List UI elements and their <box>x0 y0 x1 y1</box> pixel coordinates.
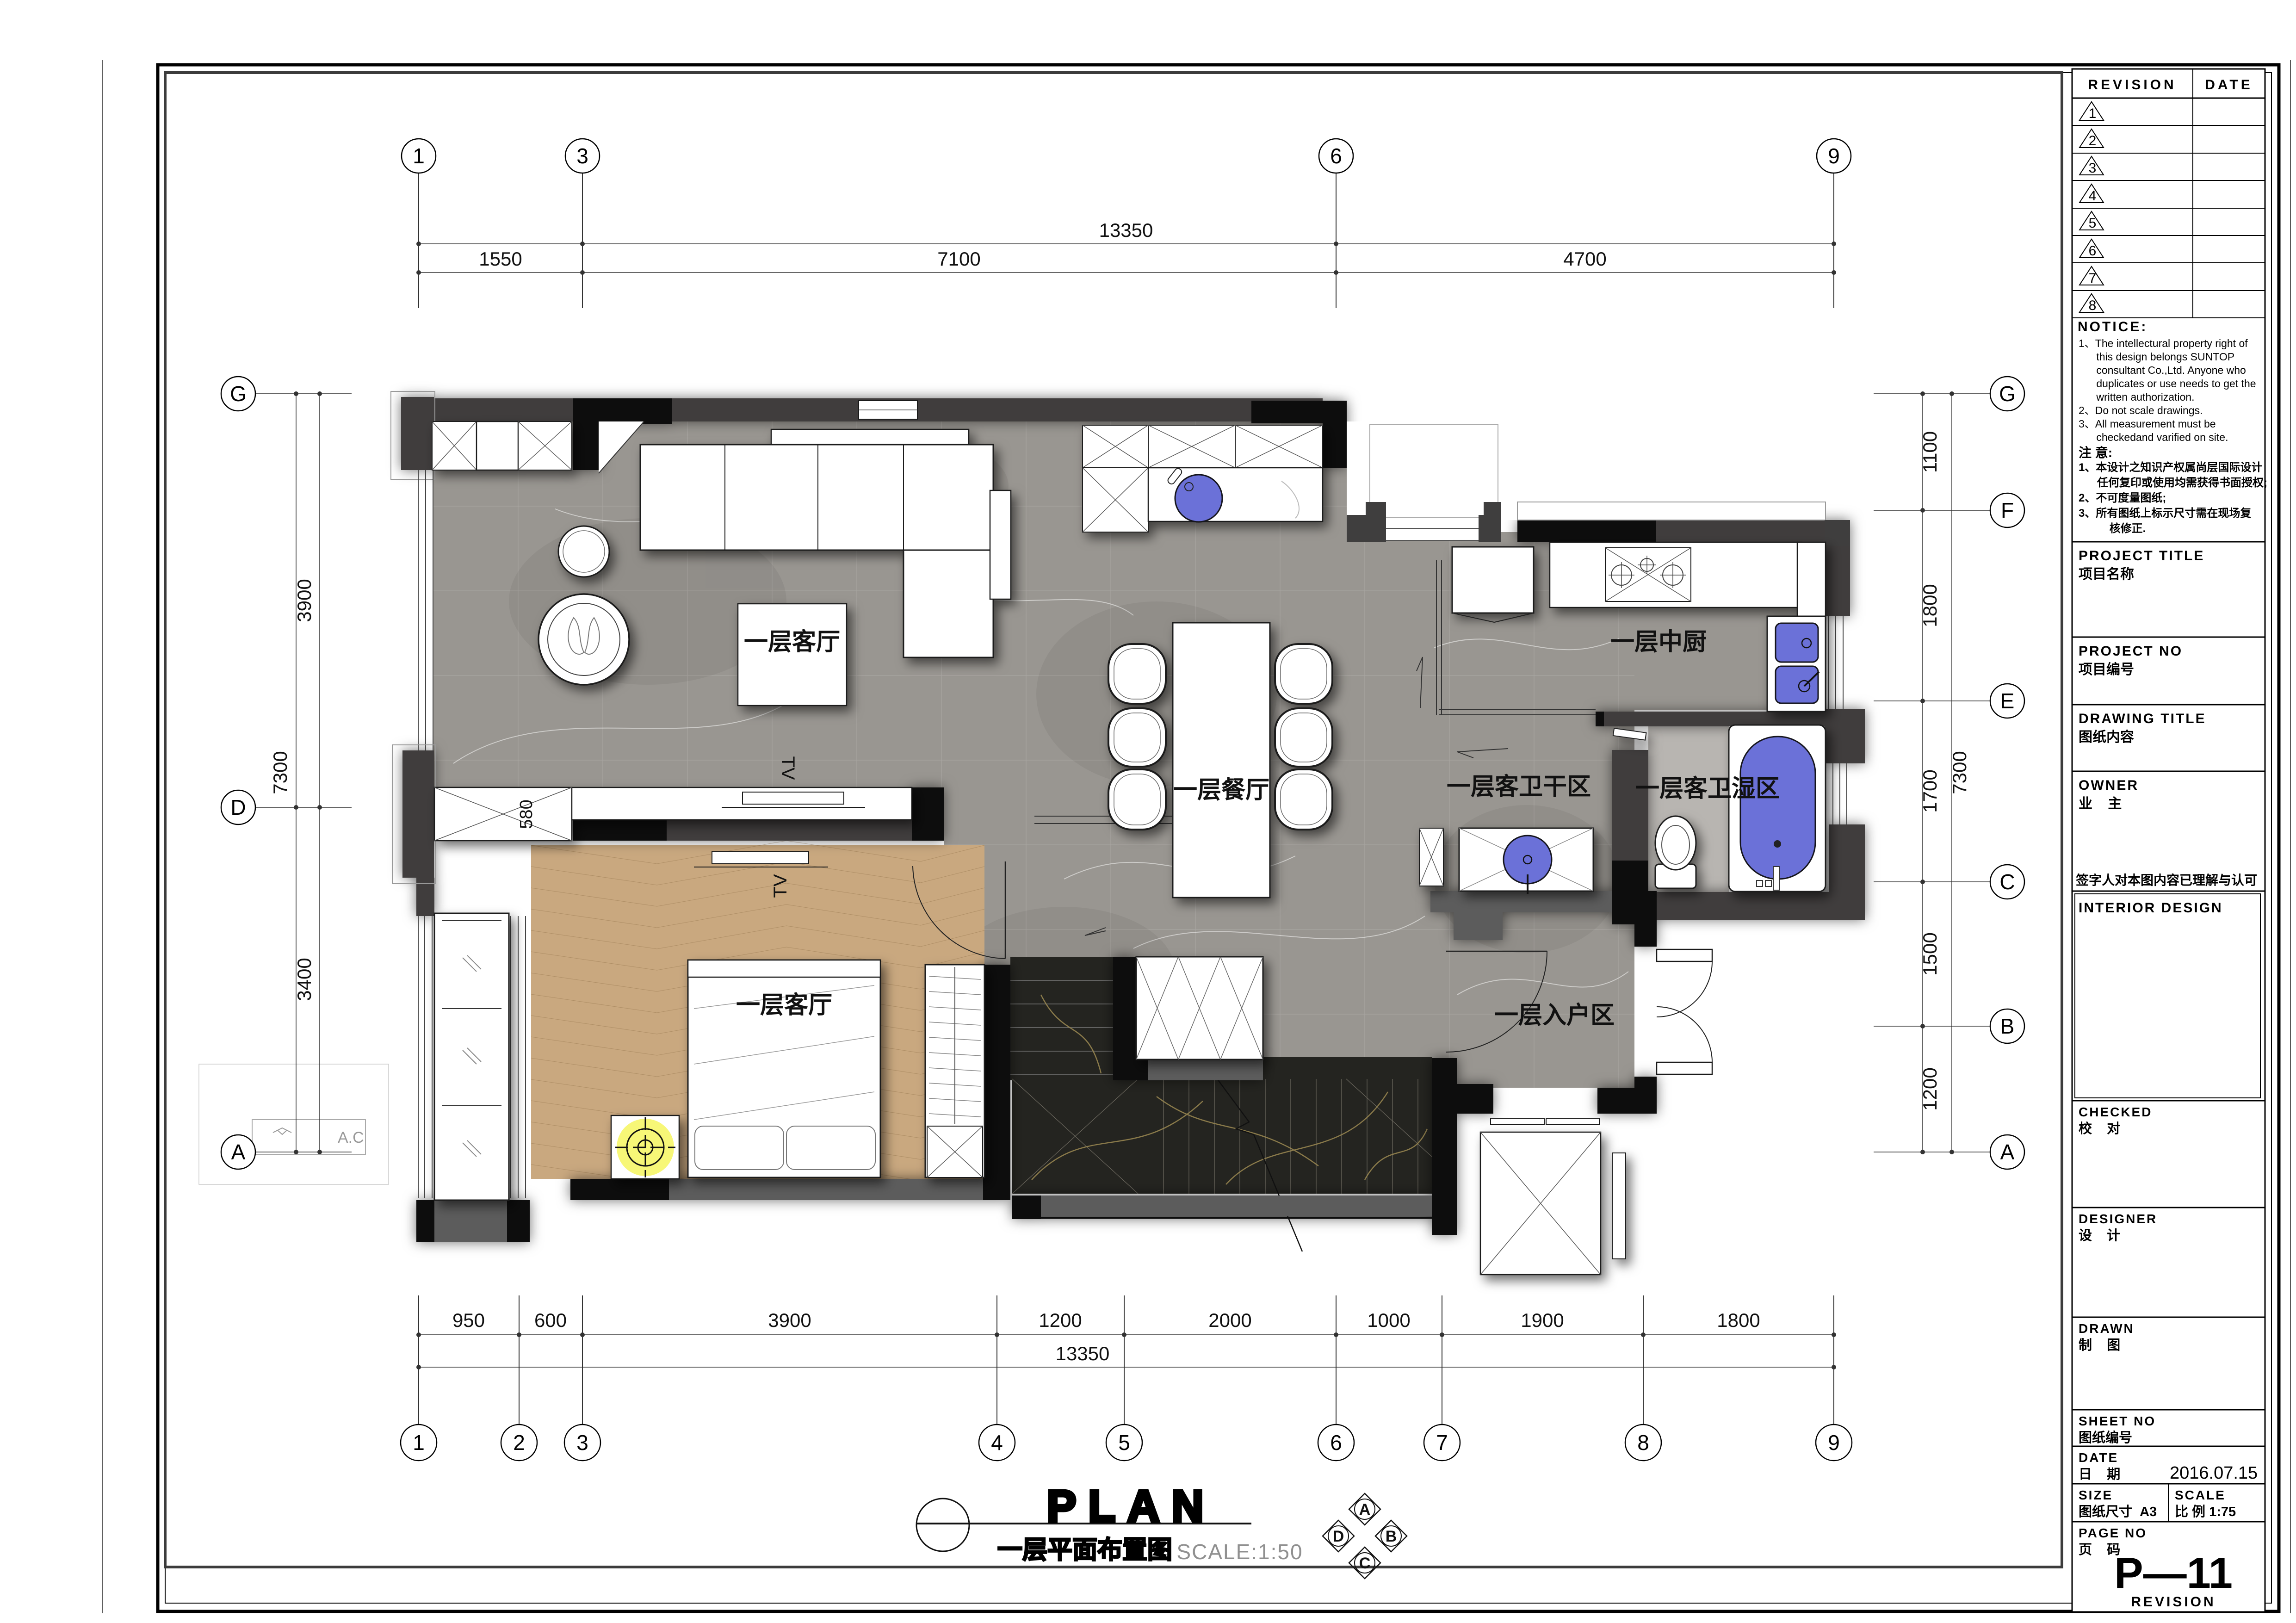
svg-text:REVISION: REVISION <box>2131 1594 2216 1610</box>
svg-text:B: B <box>2000 1014 2015 1038</box>
svg-text:7300: 7300 <box>1949 751 1970 794</box>
svg-text:1200: 1200 <box>1039 1309 1082 1331</box>
svg-text:G: G <box>1999 382 2016 406</box>
svg-text:1200: 1200 <box>1919 1067 1941 1110</box>
svg-text:1、The intellectural property r: 1、The intellectural property right of <box>2079 337 2248 349</box>
svg-text:6: 6 <box>2089 243 2097 259</box>
svg-text:制 图: 制 图 <box>2079 1338 2120 1353</box>
svg-text:13350: 13350 <box>1099 219 1153 241</box>
svg-text:DATE: DATE <box>2205 77 2253 93</box>
svg-text:5: 5 <box>2089 216 2097 231</box>
svg-text:一层餐厅: 一层餐厅 <box>1173 777 1269 804</box>
svg-text:2、Do not scale drawings.: 2、Do not scale drawings. <box>2079 404 2203 416</box>
svg-text:4: 4 <box>2089 188 2097 204</box>
svg-text:SCALE:1:50: SCALE:1:50 <box>1176 1540 1303 1564</box>
svg-text:一层平面布置图: 一层平面布置图 <box>997 1536 1172 1564</box>
svg-text:OWNER: OWNER <box>2079 778 2139 793</box>
svg-text:INTERIOR DESIGN: INTERIOR DESIGN <box>2079 900 2223 916</box>
svg-text:consultant Co.,Ltd. Anyone who: consultant Co.,Ltd. Anyone who <box>2079 364 2246 376</box>
svg-text:7300: 7300 <box>269 751 291 794</box>
svg-text:2: 2 <box>2089 133 2097 149</box>
svg-text:设 计: 设 计 <box>2079 1228 2120 1243</box>
svg-text:1100: 1100 <box>1919 431 1941 473</box>
svg-text:P—11: P—11 <box>2114 1549 2233 1597</box>
svg-text:duplicates or use needs to get: duplicates or use needs to get the <box>2079 378 2256 390</box>
svg-text:1000: 1000 <box>1367 1309 1410 1331</box>
svg-text:9: 9 <box>1828 1431 1840 1455</box>
svg-text:this design belongs SUNTOP: this design belongs SUNTOP <box>2079 351 2234 363</box>
svg-text:SHEET NO: SHEET NO <box>2079 1414 2156 1428</box>
svg-text:1900: 1900 <box>1521 1309 1564 1331</box>
svg-text:一层客卫干区: 一层客卫干区 <box>1447 774 1591 800</box>
svg-text:3900: 3900 <box>768 1309 811 1331</box>
svg-text:1700: 1700 <box>1919 769 1941 812</box>
svg-text:A.C: A.C <box>338 1129 364 1146</box>
svg-text:图纸编号: 图纸编号 <box>2079 1430 2132 1445</box>
svg-text:图纸内容: 图纸内容 <box>2079 730 2134 745</box>
svg-text:2、不可度量图纸;: 2、不可度量图纸; <box>2079 491 2166 504</box>
svg-text:一层客厅: 一层客厅 <box>736 992 832 1019</box>
svg-text:7100: 7100 <box>937 248 980 270</box>
svg-text:日 期: 日 期 <box>2079 1467 2120 1482</box>
svg-text:13350: 13350 <box>1056 1343 1110 1364</box>
svg-text:2000: 2000 <box>1208 1309 1251 1331</box>
svg-text:D: D <box>1333 1528 1344 1545</box>
svg-text:2016.07.15: 2016.07.15 <box>2170 1463 2258 1483</box>
svg-text:核修正.: 核修正. <box>2079 522 2146 535</box>
svg-text:A: A <box>2000 1140 2015 1164</box>
svg-text:一层中厨: 一层中厨 <box>1610 629 1707 656</box>
svg-text:一层客厅: 一层客厅 <box>744 629 840 656</box>
svg-text:PAGE NO: PAGE NO <box>2079 1526 2147 1540</box>
svg-text:4: 4 <box>991 1431 1003 1455</box>
svg-text:SIZE: SIZE <box>2079 1488 2113 1502</box>
svg-text:3900: 3900 <box>293 579 315 622</box>
svg-text:比 例 1:75: 比 例 1:75 <box>2175 1504 2236 1519</box>
svg-text:6: 6 <box>1330 144 1342 168</box>
svg-text:TV: TV <box>770 874 791 898</box>
svg-text:业 主: 业 主 <box>2079 796 2122 811</box>
svg-text:PLAN: PLAN <box>1046 1481 1215 1531</box>
svg-text:一层客卫湿区: 一层客卫湿区 <box>1635 775 1780 802</box>
svg-text:DRAWING TITLE: DRAWING TITLE <box>2079 711 2206 726</box>
svg-text:PROJECT TITLE: PROJECT TITLE <box>2079 548 2204 564</box>
svg-text:DESIGNER: DESIGNER <box>2079 1212 2157 1226</box>
svg-text:580: 580 <box>517 799 536 829</box>
svg-text:4700: 4700 <box>1563 248 1606 270</box>
svg-text:1800: 1800 <box>1919 584 1941 627</box>
svg-text:REVISION: REVISION <box>2088 77 2176 93</box>
svg-text:9: 9 <box>1828 144 1840 168</box>
svg-text:1550: 1550 <box>479 248 522 270</box>
svg-text:checkedand varified on site.: checkedand varified on site. <box>2079 431 2228 443</box>
svg-text:CHECKED: CHECKED <box>2079 1105 2152 1119</box>
svg-text:DATE: DATE <box>2079 1450 2118 1465</box>
svg-text:注 意:: 注 意: <box>2079 445 2112 460</box>
svg-text:D: D <box>230 795 246 819</box>
svg-text:项目名称: 项目名称 <box>2079 567 2134 582</box>
svg-text:NOTICE:: NOTICE: <box>2078 319 2147 335</box>
svg-text:5: 5 <box>1118 1431 1130 1455</box>
svg-text:PROJECT NO: PROJECT NO <box>2079 644 2183 659</box>
svg-text:8: 8 <box>1637 1431 1649 1455</box>
svg-text:F: F <box>2001 498 2014 522</box>
svg-text:项目编号: 项目编号 <box>2079 662 2134 677</box>
svg-text:written authorization.: written authorization. <box>2079 391 2195 403</box>
svg-text:3: 3 <box>2089 161 2097 176</box>
svg-text:7: 7 <box>1436 1431 1448 1455</box>
svg-text:3: 3 <box>576 1431 588 1455</box>
svg-text:3: 3 <box>576 144 588 168</box>
svg-text:SCALE: SCALE <box>2175 1488 2226 1502</box>
svg-text:1800: 1800 <box>1717 1309 1760 1331</box>
svg-text:1500: 1500 <box>1919 932 1941 975</box>
svg-text:1: 1 <box>413 144 425 168</box>
svg-text:C: C <box>1999 870 2015 894</box>
svg-text:1: 1 <box>2089 106 2097 121</box>
svg-text:G: G <box>230 382 247 406</box>
svg-text:7: 7 <box>2089 271 2097 286</box>
svg-text:3400: 3400 <box>293 958 315 1001</box>
svg-text:950: 950 <box>452 1309 485 1331</box>
svg-text:1: 1 <box>413 1431 425 1455</box>
svg-text:3、所有图纸上标示尺寸需在现场复: 3、所有图纸上标示尺寸需在现场复 <box>2079 507 2252 520</box>
svg-text:一层入户区: 一层入户区 <box>1494 1002 1615 1029</box>
svg-text:8: 8 <box>2089 298 2097 313</box>
svg-text:B: B <box>1386 1528 1397 1545</box>
svg-text:6: 6 <box>1330 1431 1342 1455</box>
svg-text:校 对: 校 对 <box>2079 1121 2120 1136</box>
svg-text:图纸尺寸 A3: 图纸尺寸 A3 <box>2079 1504 2157 1519</box>
svg-text:600: 600 <box>534 1309 567 1331</box>
svg-text:TV: TV <box>778 756 798 780</box>
svg-text:A: A <box>231 1140 246 1164</box>
svg-text:A: A <box>1359 1501 1371 1518</box>
svg-text:3、All measurement must be: 3、All measurement must be <box>2079 418 2216 430</box>
svg-text:1、本设计之知识产权属尚层国际设计: 1、本设计之知识产权属尚层国际设计 <box>2079 461 2262 474</box>
svg-text:C: C <box>1359 1555 1371 1572</box>
svg-text:E: E <box>2000 689 2015 713</box>
svg-text:任何复印或使用均需获得书面授权;: 任何复印或使用均需获得书面授权; <box>2079 476 2267 489</box>
svg-text:2: 2 <box>513 1431 525 1455</box>
svg-text:DRAWN: DRAWN <box>2079 1321 2135 1336</box>
svg-text:签字人对本图内容已理解与认可: 签字人对本图内容已理解与认可 <box>2076 873 2257 887</box>
